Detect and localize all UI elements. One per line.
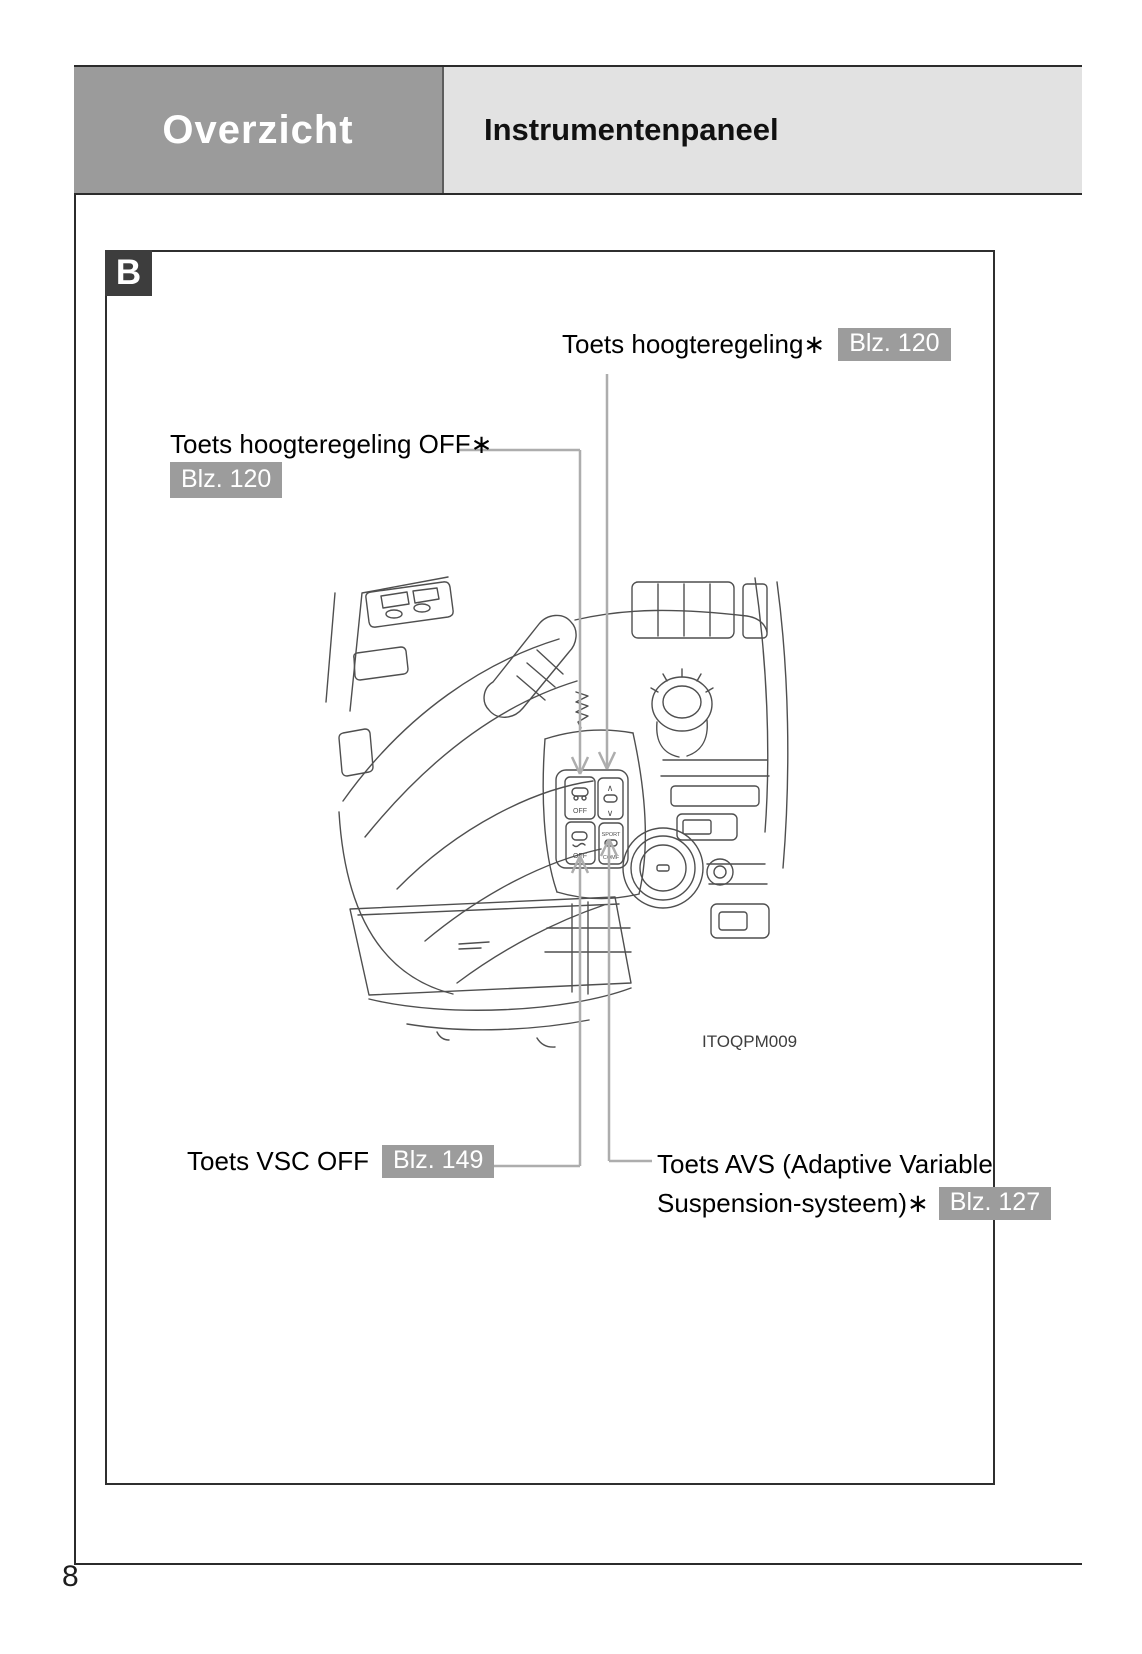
callout-height-control-label: Toets hoogteregeling∗ (562, 329, 825, 360)
door-panel-sketch (326, 577, 453, 776)
callout-avs-label-line1: Toets AVS (Adaptive Variable (657, 1145, 1051, 1183)
manual-page: { "header": { "section_label": "Overzich… (0, 0, 1142, 1654)
right-dash-sketch (632, 578, 788, 938)
callout-vsc-off-label: Toets VSC OFF (187, 1146, 369, 1177)
callout-vsc-off: Toets VSC OFF Blz. 149 (187, 1145, 494, 1178)
down-arrow-icon: ∨ (607, 808, 614, 818)
callout-height-control-off-label: Toets hoogteregeling OFF∗ (170, 429, 492, 459)
page-ref-badge: Blz. 120 (838, 328, 950, 361)
svg-text:OFF: OFF (573, 808, 587, 815)
car-icon (604, 795, 617, 802)
steering-column-sketch (339, 615, 604, 994)
leader-height-off (459, 450, 580, 774)
callout-avs-line2: Suspension-systeem)∗ Blz. 127 (657, 1184, 1051, 1222)
callout-height-control-off: Toets hoogteregeling OFF∗ (170, 429, 492, 460)
spring-sketch (576, 692, 588, 728)
dial-knob-sketch (651, 669, 713, 757)
section-tab: Overzicht (74, 67, 444, 193)
callout-avs: Toets AVS (Adaptive Variable Suspension-… (657, 1145, 1051, 1222)
lower-tray-sketch (350, 897, 631, 1047)
figure-code: ITOQPM009 (702, 1032, 797, 1051)
callout-height-control-off-ref: Blz. 120 (170, 467, 282, 492)
page-header: Overzicht Instrumentenpaneel (74, 65, 1082, 195)
page-title: Instrumentenpaneel (484, 112, 779, 148)
leader-avs (609, 839, 652, 1161)
svg-text:SPORT: SPORT (602, 832, 621, 838)
page-number: 8 (62, 1560, 79, 1594)
page-ref-badge: Blz. 149 (382, 1145, 494, 1178)
figure-box: B (105, 250, 995, 1485)
switch-panel-sketch: OFF ∧ ∨ OFF SPORT COMF (556, 770, 628, 868)
car-icon (572, 788, 588, 796)
car-skid-icon (572, 832, 587, 840)
section-label: Overzicht (162, 108, 353, 153)
up-arrow-icon: ∧ (607, 783, 614, 793)
page-ref-badge: Blz. 127 (939, 1187, 1051, 1220)
title-band: Instrumentenpaneel (444, 67, 1082, 193)
page-ref-badge: Blz. 120 (170, 462, 282, 498)
callout-height-control: Toets hoogteregeling∗ Blz. 120 (562, 328, 951, 361)
callout-avs-label-line2: Suspension-systeem)∗ (657, 1184, 929, 1222)
